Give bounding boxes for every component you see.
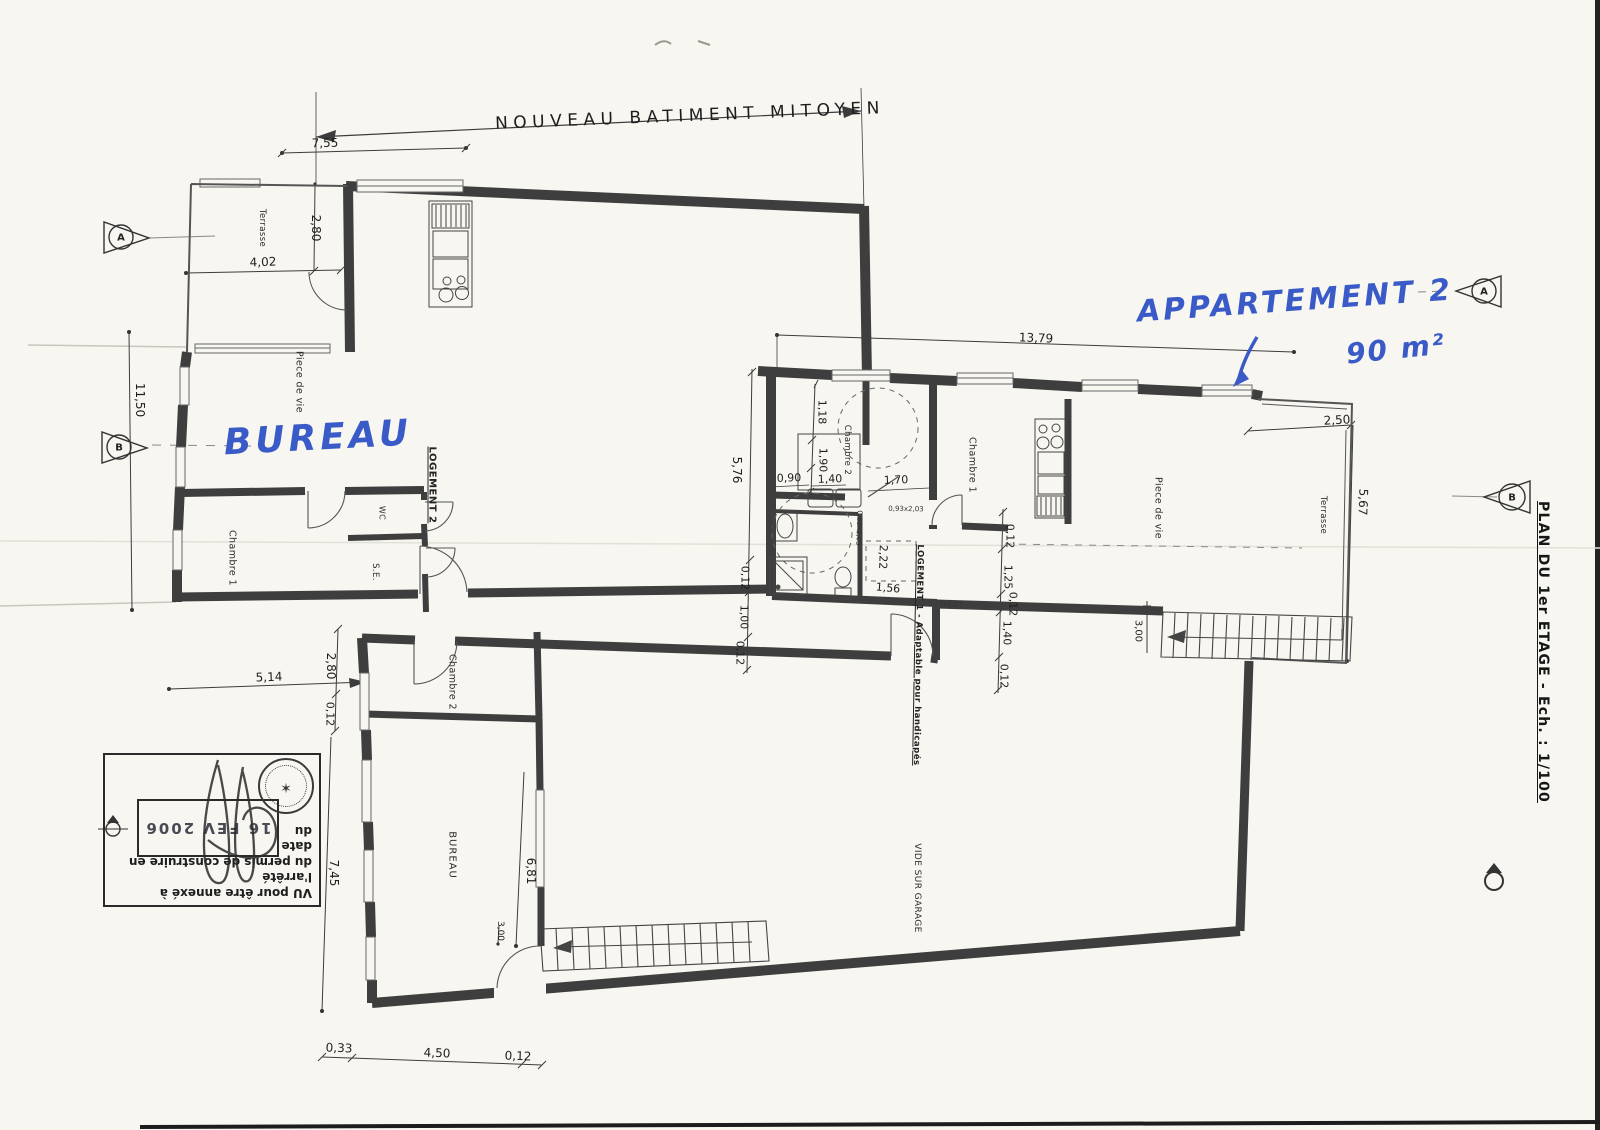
dim-2-80-terrace: 2,80 [309, 215, 323, 242]
dim-0-12-b: 0,12 [734, 641, 747, 666]
door-size-a: 0,93x2,03 [888, 505, 923, 514]
dim-1-25: 1,25 [1002, 565, 1015, 590]
kitchen-right-icon [1035, 419, 1066, 518]
dim-0-90: 0,90 [777, 471, 802, 485]
room-living-left: Piece de vie [294, 351, 305, 413]
room-wc: WC [378, 506, 387, 520]
section-marker-a-right-letter: A [1480, 287, 1488, 298]
dim-1-40-b: 1,40 [1001, 621, 1014, 646]
section-marker-a-left-letter: A [117, 233, 125, 244]
dim-11-50: 11,50 [133, 383, 147, 417]
stairs-right [1161, 612, 1352, 661]
dim-1-90: 1,90 [817, 448, 830, 473]
plan-title: PLAN DU 1er ETAGE - Ech. : 1/100 [1535, 501, 1551, 803]
dim-7-55: 7,55 [312, 136, 339, 150]
signature-scribble [148, 745, 308, 915]
section-marker-b-left-letter: B [115, 443, 123, 454]
dim-1-56: 1,56 [875, 580, 901, 595]
dim-4-02: 4,02 [249, 255, 276, 270]
room-office: BUREAU [447, 831, 458, 879]
dim-2-50: 2,50 [1323, 412, 1350, 427]
room-terrace-left: Terrasse [257, 209, 267, 247]
dim-3-00-bottom: 3,00 [495, 921, 505, 941]
dim-0-12-e: 0,12 [998, 664, 1011, 689]
dim-5-14: 5,14 [255, 670, 282, 685]
dim-1-00: 1,00 [738, 605, 751, 630]
dim-0-33: 0,33 [325, 1041, 352, 1056]
scan-creases [0, 41, 1600, 606]
scanned-floorplan-page: NOUVEAU BATIMENT MITOYEN PLAN DU 1er ETA… [0, 0, 1600, 1130]
dim-5-76: 5,76 [730, 457, 744, 484]
handwritten-arrow [1233, 337, 1257, 387]
dim-0-12-f: 0,12 [324, 702, 337, 727]
room-bedroom1-right: Chambre 1 [967, 437, 978, 493]
room-unit2: LOGEMENT 2 [427, 447, 438, 524]
dim-6-81: 6,81 [524, 858, 538, 885]
section-marker-b-right-letter: B [1508, 493, 1516, 504]
dim-3-00-right: 3,00 [1133, 620, 1144, 642]
floorplan-drawing [0, 0, 1600, 1130]
dim-0-12-a: 0,12 [739, 566, 752, 591]
kitchen-left-icon [429, 201, 472, 307]
dim-1-40-a: 1,40 [818, 472, 843, 486]
room-terrace-right: Terrasse [1318, 496, 1328, 534]
dim-4-50: 4,50 [423, 1046, 450, 1061]
dim-2-22: 2,22 [876, 545, 890, 570]
room-living-right: Piece de vie [1153, 477, 1164, 539]
dim-13-79: 13,79 [1019, 330, 1054, 345]
room-bedroom2-bottom: Chambre 2 [447, 654, 458, 710]
dim-5-67: 5,67 [1356, 488, 1371, 515]
dim-0-12-g: 0,12 [504, 1049, 531, 1064]
dim-2-80-bottom: 2,80 [324, 653, 338, 680]
room-bedroom1-left: Chambre 1 [227, 530, 238, 586]
dim-0-12-c: 0,12 [1004, 524, 1017, 549]
door-size-b: 0,83x2,03 [854, 510, 863, 546]
door-size-c: 3x2,03 [939, 599, 964, 608]
dim-1-70: 1,70 [884, 473, 909, 487]
stairs-bottom [540, 921, 769, 971]
dim-1-18: 1,18 [816, 400, 829, 425]
room-void-over-garage: VIDE SUR GARAGE [912, 843, 922, 932]
room-shower: S.E. [370, 563, 380, 581]
dim-7-45: 7,45 [327, 860, 341, 887]
level-marker-bottom-right [1485, 863, 1503, 890]
room-bedroom2-center: Chambre 2 [842, 425, 852, 475]
dim-0-12-d: 0,12 [1007, 592, 1020, 617]
